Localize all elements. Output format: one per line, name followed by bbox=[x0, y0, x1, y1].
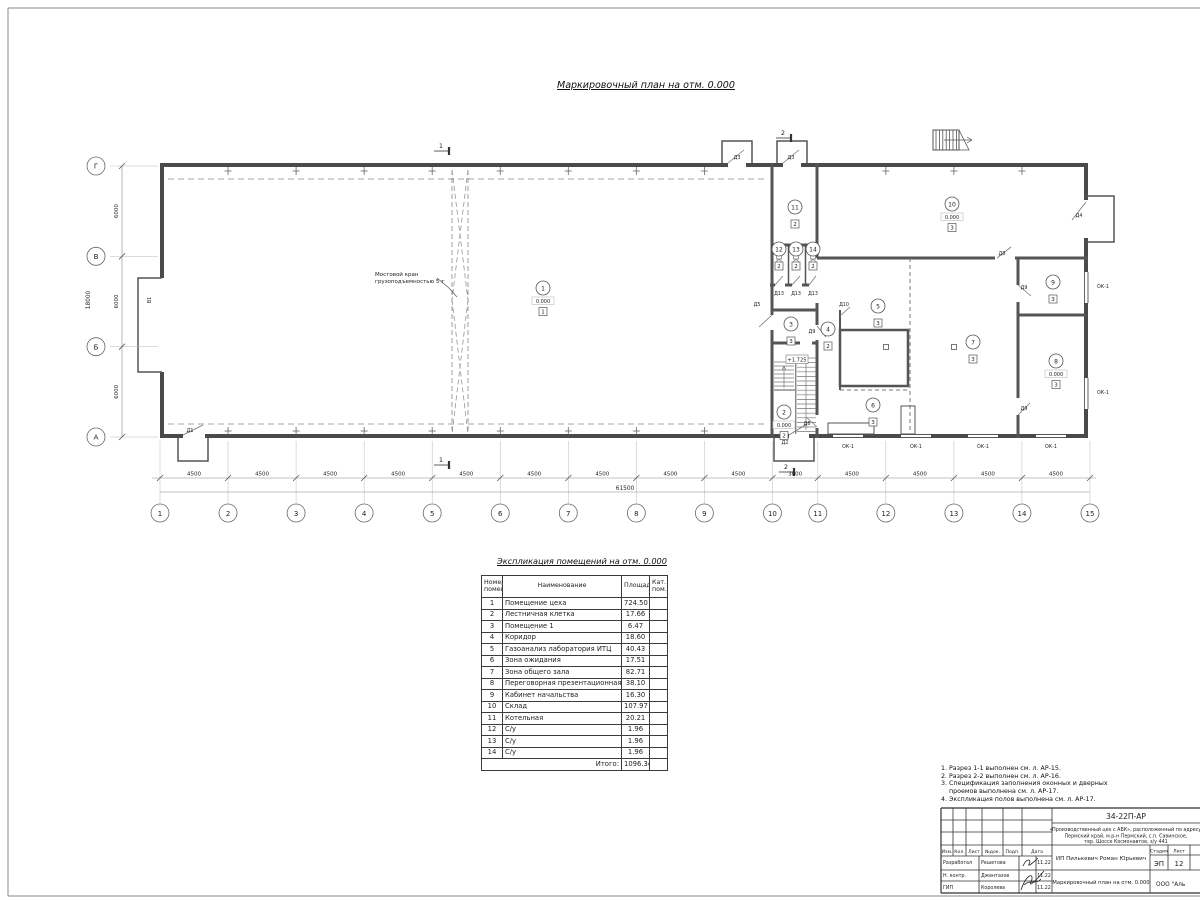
total-category-cell bbox=[650, 759, 668, 771]
window-label: ОК-1 bbox=[1097, 284, 1109, 290]
room-name-cell: С/у bbox=[503, 747, 622, 759]
table-row: 1Помещение цеха724.50 bbox=[482, 598, 668, 610]
total-dimension: 61500 bbox=[616, 486, 635, 492]
room-number-cell: 13 bbox=[482, 736, 503, 748]
room-area-cell: 82.71 bbox=[622, 667, 650, 679]
date-gip: 11.22 bbox=[1037, 885, 1051, 891]
sheet-label: Лист bbox=[1173, 849, 1185, 855]
table-row: 2Лестничная клетка17.66 bbox=[482, 609, 668, 621]
dimension-label: 3000 bbox=[788, 472, 802, 478]
room-elevation: 0.000 bbox=[945, 215, 959, 221]
room-number-cell: 11 bbox=[482, 713, 503, 725]
name-developer: Решетова bbox=[981, 860, 1006, 866]
axis-number: 15 bbox=[1086, 510, 1095, 518]
room-number: 11 bbox=[791, 204, 799, 211]
room-number: 13 bbox=[792, 246, 800, 253]
room-name-cell: Коридор bbox=[503, 632, 622, 644]
door-label: Д9 bbox=[1021, 285, 1028, 291]
axis-number: 11 bbox=[813, 510, 822, 518]
room-name-cell: Зона ожидания bbox=[503, 655, 622, 667]
room-name-cell: Котельная bbox=[503, 713, 622, 725]
room-category-cell bbox=[650, 667, 668, 679]
room-area-cell: 20.21 bbox=[622, 713, 650, 725]
note-line: 3. Спецификация заполнения оконных и две… bbox=[941, 780, 1191, 788]
col-podp: Подп. bbox=[1006, 849, 1020, 855]
table-row: 10Склад107.97 bbox=[482, 701, 668, 713]
table-row: 8Переговорная презентационная38.10 bbox=[482, 678, 668, 690]
dimension-label: 6000 bbox=[114, 204, 120, 218]
axis-letter: Г bbox=[94, 163, 98, 171]
room-name-cell: Склад bbox=[503, 701, 622, 713]
room-name-cell: Помещение цеха bbox=[503, 598, 622, 610]
axis-letter: А bbox=[94, 434, 99, 442]
dimension-label: 4500 bbox=[187, 472, 201, 478]
room-tags: 10.000120.0002334253637380.000393100.000… bbox=[532, 197, 1067, 440]
room-number: 6 bbox=[871, 402, 875, 409]
project-name: Пермский край, м.р-н Пермский, с.п. Сави… bbox=[1065, 833, 1188, 840]
axis-number: 10 bbox=[768, 510, 777, 518]
room-category-cell bbox=[650, 724, 668, 736]
axis-number: 13 bbox=[949, 510, 958, 518]
total-value: 1096.34 bbox=[622, 759, 650, 771]
floor-type-number: 2 bbox=[826, 344, 830, 350]
company-name: ООО "Аль bbox=[1156, 882, 1186, 888]
room-number: 10 bbox=[948, 201, 956, 208]
axis-number: 14 bbox=[1017, 510, 1026, 518]
dimension-label: 4500 bbox=[981, 472, 995, 478]
window-label: ОК-1 bbox=[1045, 444, 1057, 450]
dimension-label: 6000 bbox=[114, 384, 120, 398]
room-number: 1 bbox=[541, 285, 545, 292]
table-row: 14С/у1.96 bbox=[482, 747, 668, 759]
window-label: ОК-1 bbox=[977, 444, 989, 450]
note-line: 4. Экспликация полов выполнена см. л. АР… bbox=[941, 796, 1191, 804]
room-number-cell: 6 bbox=[482, 655, 503, 667]
door-leaves bbox=[183, 150, 1086, 435]
room-number: 7 bbox=[971, 339, 975, 346]
table-row: 9Кабинет начальства16.30 bbox=[482, 690, 668, 702]
doc-number: 34-22П-АР bbox=[1106, 812, 1146, 821]
room-area-cell: 1.96 bbox=[622, 747, 650, 759]
floor-type-number: 2 bbox=[794, 264, 798, 270]
plan-title: Маркировочный план на отм. 0.000 bbox=[557, 80, 735, 91]
table-total-row: Итого:1096.34 bbox=[482, 759, 668, 771]
room-number: 4 bbox=[826, 326, 830, 333]
sheet-number: 12 bbox=[1175, 860, 1184, 868]
floor-type-number: 3 bbox=[1051, 297, 1055, 303]
axis-number: 12 bbox=[881, 510, 890, 518]
exterior-stair-icon bbox=[933, 130, 972, 150]
room-number: 14 bbox=[809, 246, 817, 253]
floor-type-number: 3 bbox=[950, 226, 954, 232]
floor-type-number: 3 bbox=[871, 420, 875, 426]
col-data: Дата bbox=[1031, 849, 1043, 855]
door-label: Д3 bbox=[734, 155, 741, 161]
room-elevation: 0.000 bbox=[536, 299, 550, 305]
table-row: 11Котельная20.21 bbox=[482, 713, 668, 725]
door-label: В1 bbox=[147, 297, 153, 303]
room-number: 5 bbox=[876, 303, 880, 310]
name-ncontrol: Джентазов bbox=[981, 873, 1009, 879]
client-name: ИП Пилькевич Роман Юрьевич bbox=[1056, 856, 1146, 862]
table-row: 12С/у1.96 bbox=[482, 724, 668, 736]
window-label: ОК-1 bbox=[1097, 390, 1109, 396]
drawing-sheet: Мостовой кран грузоподъемностью 5 т +1.7… bbox=[0, 0, 1200, 900]
room-number-cell: 8 bbox=[482, 678, 503, 690]
dimension-label: 4500 bbox=[731, 472, 745, 478]
room-area-cell: 1.96 bbox=[622, 736, 650, 748]
room-number: 3 bbox=[789, 321, 793, 328]
table-row: 13С/у1.96 bbox=[482, 736, 668, 748]
axis-number: 6 bbox=[498, 510, 503, 518]
col-izm: Изм. bbox=[942, 849, 953, 855]
project-name: «Производственный цех с АБК», расположен… bbox=[1049, 826, 1200, 833]
room-number-cell: 1 bbox=[482, 598, 503, 610]
door-label: Д3 bbox=[788, 155, 795, 161]
door-labels: В1Д1Д2Д3Д3Д4Д5Д6Д8Д9Д9Д9Д10Д13Д13Д13ОК-1… bbox=[147, 155, 1109, 450]
dimension-label: 4500 bbox=[1049, 472, 1063, 478]
room-area-cell: 40.43 bbox=[622, 644, 650, 656]
floor-type-number: 1 bbox=[541, 310, 545, 316]
room-area-cell: 6.47 bbox=[622, 621, 650, 633]
door-label: Д10 bbox=[839, 302, 849, 308]
date-ncontrol: 11.22 bbox=[1037, 873, 1051, 879]
axis-number: 7 bbox=[566, 510, 570, 518]
room-area-cell: 724.50 bbox=[622, 598, 650, 610]
room-schedule-table: Номер помещ. Наименование Площадь Кат. п… bbox=[481, 575, 668, 771]
room-category-cell bbox=[650, 678, 668, 690]
section-1-label: 1 bbox=[439, 456, 443, 464]
col-ndok: №док. bbox=[985, 849, 1000, 855]
role-developer: Разработал bbox=[943, 860, 972, 866]
room-number-cell: 5 bbox=[482, 644, 503, 656]
date-developer: 11.22 bbox=[1037, 860, 1051, 866]
section-marks bbox=[434, 134, 794, 476]
table-row: 5Газоанализ лаборатория ИТЦ40.43 bbox=[482, 644, 668, 656]
col-header-number: Номер помещ. bbox=[482, 576, 503, 598]
dimension-label: 4500 bbox=[913, 472, 927, 478]
section-2-label: 2 bbox=[784, 463, 788, 471]
door-label: Д13 bbox=[774, 291, 784, 297]
axis-number: 1 bbox=[158, 510, 162, 518]
note-line: проемов выполнена см. л. АР-17. bbox=[941, 788, 1191, 796]
axis-number: 2 bbox=[226, 510, 230, 518]
room-area-cell: 17.51 bbox=[622, 655, 650, 667]
window-label: ОК-1 bbox=[842, 444, 854, 450]
window-label: ОК-1 bbox=[910, 444, 922, 450]
dimension-label: 4500 bbox=[391, 472, 405, 478]
room-number: 12 bbox=[775, 246, 783, 253]
room-area-cell: 1.96 bbox=[622, 724, 650, 736]
floor-type-number: 2 bbox=[782, 434, 786, 440]
dimensions-bottom: 1234567891011121314154500450045004500450… bbox=[151, 441, 1099, 522]
stage-label: Стадия bbox=[1150, 849, 1168, 855]
stage-value: ЭП bbox=[1154, 860, 1164, 868]
room-number-cell: 12 bbox=[482, 724, 503, 736]
room-elevation: 0.000 bbox=[1049, 372, 1063, 378]
room-category-cell bbox=[650, 690, 668, 702]
col-header-name: Наименование bbox=[503, 576, 622, 598]
door-label: Д9 bbox=[1021, 406, 1028, 412]
section-1-label: 1 bbox=[439, 142, 443, 150]
room-category-cell bbox=[650, 713, 668, 725]
room-category-cell bbox=[650, 609, 668, 621]
room-name-cell: С/у bbox=[503, 724, 622, 736]
role-ncontrol: Н. контр. bbox=[943, 873, 966, 879]
room-number-cell: 14 bbox=[482, 747, 503, 759]
room-elevation: 0.000 bbox=[777, 423, 791, 429]
total-label: Итого: bbox=[482, 759, 622, 771]
crane-label: Мостовой кран bbox=[375, 271, 419, 278]
door-label: Д6 bbox=[804, 421, 811, 427]
floor-type-number: 3 bbox=[876, 321, 880, 327]
room-name-cell: С/у bbox=[503, 736, 622, 748]
dimension-label: 4500 bbox=[663, 472, 677, 478]
table-title: Экспликация помещений на отм. 0.000 bbox=[497, 556, 667, 566]
door-label: Д2 bbox=[782, 440, 789, 446]
room-number-cell: 2 bbox=[482, 609, 503, 621]
floor-type-number: 2 bbox=[793, 222, 797, 228]
floor-type-number: 2 bbox=[777, 264, 781, 270]
table-row: 4Коридор18.60 bbox=[482, 632, 668, 644]
porches bbox=[138, 141, 1114, 461]
door-label: Д13 bbox=[808, 291, 818, 297]
door-label: Д9 bbox=[809, 329, 816, 335]
room-category-cell bbox=[650, 655, 668, 667]
room-name-cell: Переговорная презентационная bbox=[503, 678, 622, 690]
col-kol: Кол. bbox=[954, 849, 964, 855]
room-category-cell bbox=[650, 736, 668, 748]
door-label: Д13 bbox=[791, 291, 801, 297]
room-name-cell: Газоанализ лаборатория ИТЦ bbox=[503, 644, 622, 656]
col-header-category: Кат. пом. bbox=[650, 576, 668, 598]
axis-number: 5 bbox=[430, 510, 434, 518]
col-list: Лист bbox=[968, 849, 980, 855]
room-number: 8 bbox=[1054, 358, 1058, 365]
room-name-cell: Лестничная клетка bbox=[503, 609, 622, 621]
floor-type-number: 3 bbox=[971, 357, 975, 363]
floor-type-number: 3 bbox=[789, 339, 793, 345]
room-category-cell bbox=[650, 644, 668, 656]
dimension-label: 4500 bbox=[595, 472, 609, 478]
axis-letter: В bbox=[94, 253, 99, 261]
table-row: 3Помещение 16.47 bbox=[482, 621, 668, 633]
dimension-label: 6000 bbox=[114, 294, 120, 308]
axis-letter: Б bbox=[94, 343, 99, 351]
room-category-cell bbox=[650, 598, 668, 610]
room-name-cell: Зона общего зала bbox=[503, 667, 622, 679]
axis-number: 9 bbox=[702, 510, 706, 518]
note-line: 2. Разрез 2-2 выполнен см. л. АР-16. bbox=[941, 773, 1191, 781]
room-number-cell: 10 bbox=[482, 701, 503, 713]
notes-block: 1. Разрез 1-1 выполнен см. л. АР-15.2. Р… bbox=[941, 765, 1191, 804]
room-category-cell bbox=[650, 632, 668, 644]
axis-number: 3 bbox=[294, 510, 298, 518]
total-dimension-left: 18000 bbox=[86, 290, 92, 309]
room-number-cell: 9 bbox=[482, 690, 503, 702]
door-label: Д4 bbox=[1076, 213, 1083, 219]
name-gip: Королева bbox=[981, 885, 1005, 891]
dimension-label: 4500 bbox=[323, 472, 337, 478]
column-marks bbox=[884, 345, 957, 350]
dimension-label: 4500 bbox=[527, 472, 541, 478]
dimension-label: 4500 bbox=[255, 472, 269, 478]
axis-number: 4 bbox=[362, 510, 367, 518]
table-row: 6Зона ожидания17.51 bbox=[482, 655, 668, 667]
door-label: Д5 bbox=[754, 302, 761, 308]
room-name-cell: Помещение 1 bbox=[503, 621, 622, 633]
axis-number: 8 bbox=[634, 510, 638, 518]
crane-symbol bbox=[168, 170, 764, 434]
note-line: 1. Разрез 1-1 выполнен см. л. АР-15. bbox=[941, 765, 1191, 773]
floor-type-number: 3 bbox=[1054, 383, 1058, 389]
door-label: Д1 bbox=[187, 428, 194, 434]
dimension-label: 4500 bbox=[459, 472, 473, 478]
room-area-cell: 18.60 bbox=[622, 632, 650, 644]
room-category-cell bbox=[650, 701, 668, 713]
room-area-cell: 17.66 bbox=[622, 609, 650, 621]
room-area-cell: 107.97 bbox=[622, 701, 650, 713]
crane-label: грузоподъемностью 5 т bbox=[375, 279, 445, 285]
column-ticks bbox=[225, 167, 1026, 435]
room-number-cell: 7 bbox=[482, 667, 503, 679]
col-header-area: Площадь bbox=[622, 576, 650, 598]
door-label: Д8 bbox=[999, 251, 1006, 257]
title-block-text: 34-22П-АР «Производственный цех с АБК», … bbox=[942, 812, 1200, 891]
room-area-cell: 38.10 bbox=[622, 678, 650, 690]
room-number: 9 bbox=[1051, 279, 1055, 286]
project-name: тер. Шоссе Космонавтов, з/у 441 bbox=[1084, 839, 1167, 845]
room-number: 2 bbox=[782, 409, 786, 416]
section-2-label: 2 bbox=[781, 129, 785, 137]
stamp-drawing-title: Маркировочный план на отм. 0.000 bbox=[1052, 879, 1149, 886]
room-category-cell bbox=[650, 621, 668, 633]
room-number-cell: 3 bbox=[482, 621, 503, 633]
room-number-cell: 4 bbox=[482, 632, 503, 644]
floor-type-number: 2 bbox=[811, 264, 815, 270]
stair-elevation: +1.725 bbox=[787, 358, 806, 364]
role-gip: ГИП bbox=[943, 885, 954, 891]
table-row: 7Зона общего зала82.71 bbox=[482, 667, 668, 679]
dimension-label: 4500 bbox=[845, 472, 859, 478]
room-category-cell bbox=[650, 747, 668, 759]
room-area-cell: 16.30 bbox=[622, 690, 650, 702]
interior-walls bbox=[770, 163, 1088, 438]
room-name-cell: Кабинет начальства bbox=[503, 690, 622, 702]
